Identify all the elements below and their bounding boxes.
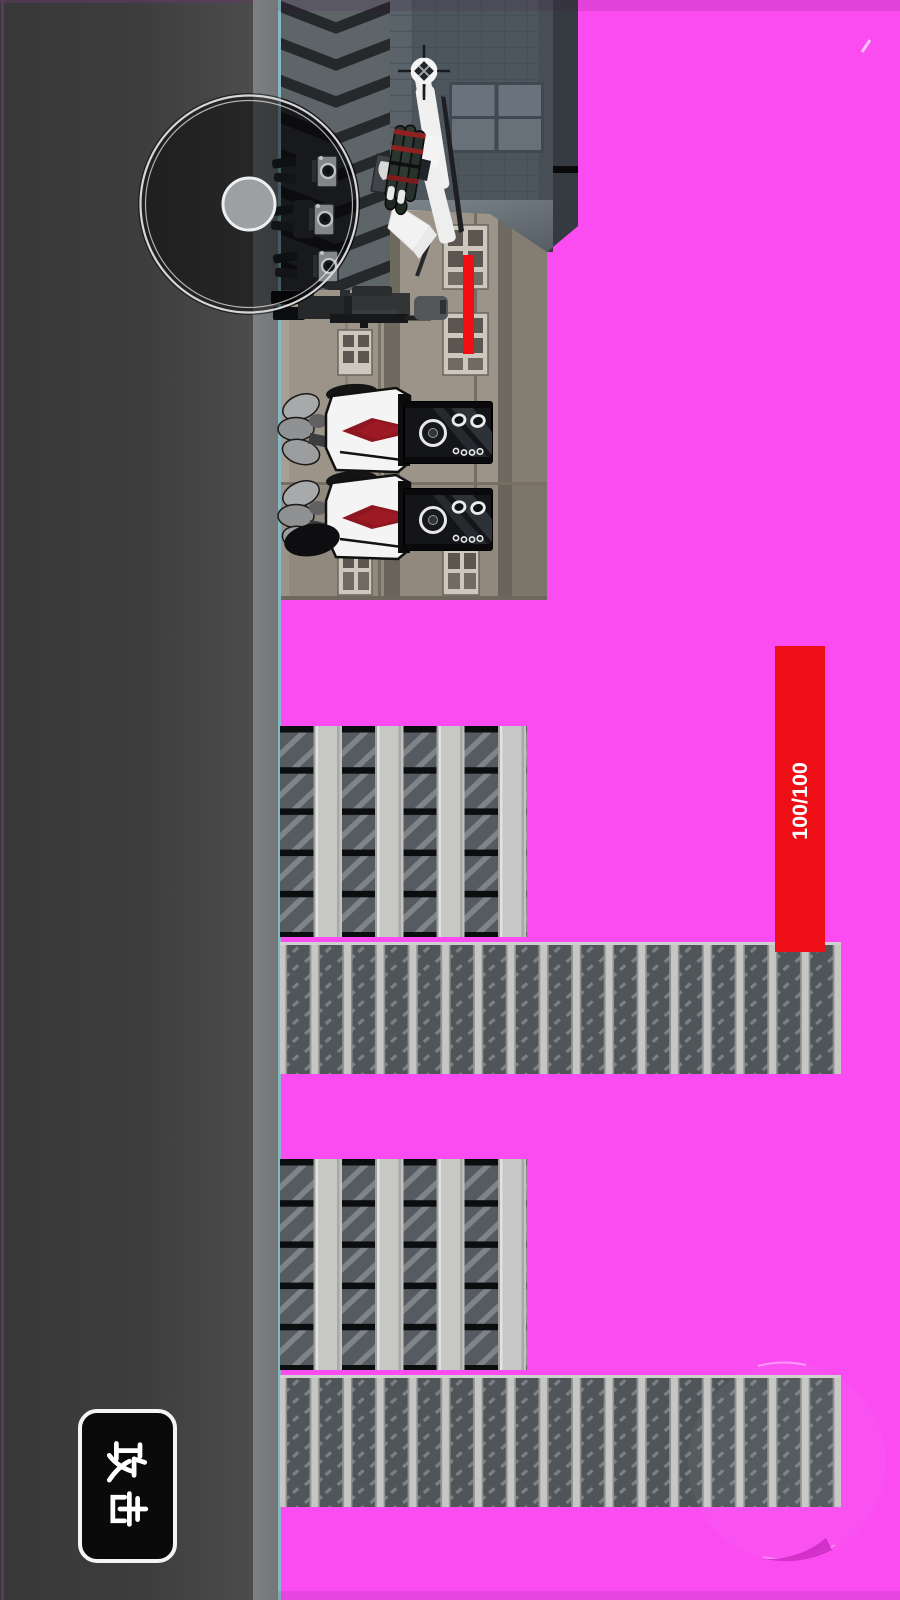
svg-text:100/100: 100/100 (788, 762, 812, 840)
